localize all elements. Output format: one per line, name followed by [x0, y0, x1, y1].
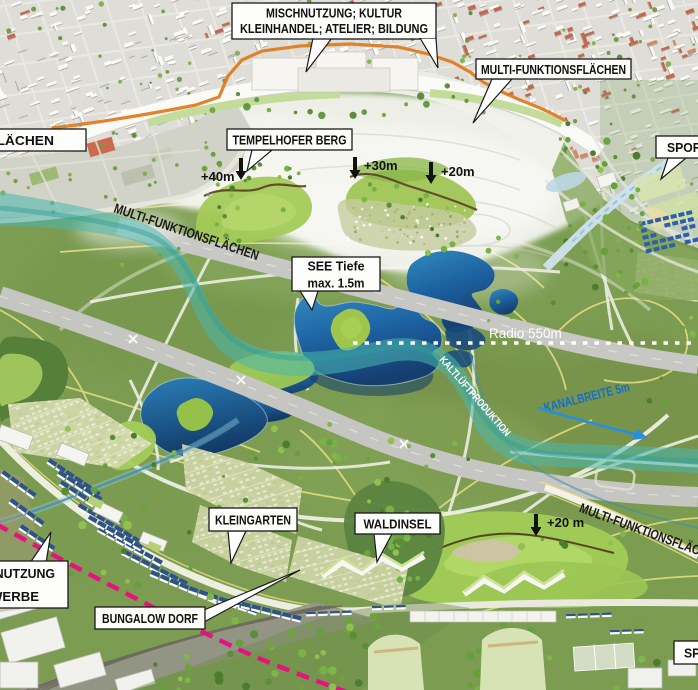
svg-text:Radio 550m: Radio 550m [489, 326, 562, 341]
svg-text:+40m: +40m [201, 169, 235, 184]
svg-text:MISCHNUTZUNG; KULTUR: MISCHNUTZUNG; KULTUR [266, 6, 402, 21]
svg-text:MULTI-FUNKTIONSFLÄCHEN: MULTI-FUNKTIONSFLÄCHEN [481, 62, 626, 77]
svg-text:KLEINHANDEL; ATELIER; BILDUNG: KLEINHANDEL; ATELIER; BILDUNG [240, 21, 428, 36]
svg-text:+20 m: +20 m [547, 515, 584, 530]
svg-text:FLÄCHEN: FLÄCHEN [0, 133, 54, 148]
svg-text:+30m: +30m [364, 158, 398, 173]
svg-text:+20m: +20m [441, 164, 475, 179]
svg-text:TEMPELHOFER BERG: TEMPELHOFER BERG [233, 133, 347, 148]
